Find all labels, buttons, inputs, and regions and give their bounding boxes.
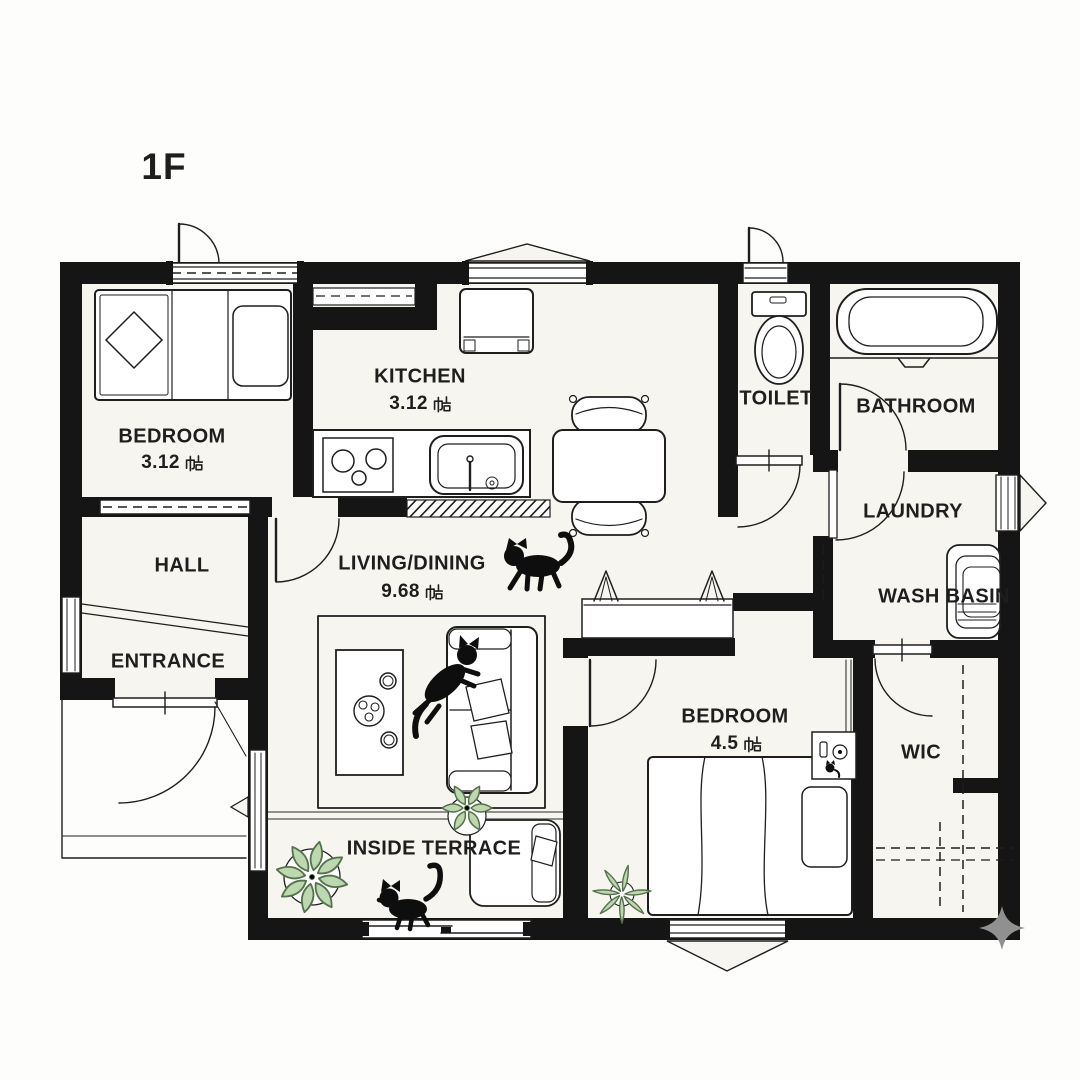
cup <box>381 732 397 748</box>
room-label-laundry: LAUNDRY <box>863 501 963 524</box>
door-exterior-bedroom1 <box>179 224 219 262</box>
chair <box>572 397 646 433</box>
window-entrance-left <box>62 597 80 673</box>
room-label-hall: HALL <box>155 555 210 578</box>
door-entrance <box>113 692 217 803</box>
size-value: 3.12 <box>141 452 180 474</box>
floor-plan-page: 1F BEDROOM 3.12 KITCHEN 3.12 TOILET BATH… <box>0 0 1080 1080</box>
dining-table <box>553 430 665 502</box>
floor-label: 1F <box>141 146 186 188</box>
window-kitchen-top <box>462 244 593 285</box>
kitchen-counter <box>313 430 530 497</box>
pillow <box>531 836 557 866</box>
toilet-fixture <box>752 292 806 384</box>
size-value: 9.68 <box>381 581 420 603</box>
terrace-floor-chair <box>470 820 560 906</box>
cup <box>380 673 396 689</box>
window-terrace-bottom <box>360 920 532 938</box>
room-size-living-dining: 9.68 <box>381 581 443 603</box>
room-size-kitchen: 3.12 <box>389 393 451 415</box>
room-size-bedroom1: 3.12 <box>141 452 203 474</box>
room-label-bathroom: BATHROOM <box>856 396 975 419</box>
window-bedroom2-bottom <box>664 920 791 971</box>
bedroom2-bed <box>648 757 852 915</box>
jou-unit-icon <box>184 454 203 473</box>
jou-unit-icon <box>432 395 451 414</box>
room-label-kitchen: KITCHEN <box>374 366 466 389</box>
room-label-bedroom1: BEDROOM <box>118 426 225 449</box>
sliding-pocket-kitchen <box>313 288 415 305</box>
chair <box>572 499 646 535</box>
door-exterior-toilet <box>749 228 783 262</box>
entrance-porch <box>62 700 246 858</box>
size-value: 4.5 <box>711 733 739 755</box>
cat-face-icon <box>826 764 835 773</box>
window-bedroom1-top <box>166 261 304 285</box>
room-label-wic: WIC <box>901 742 941 765</box>
room-label-living-dining: LIVING/DINING <box>338 553 485 576</box>
room-label-entrance: ENTRANCE <box>111 651 225 674</box>
jou-unit-icon <box>742 735 761 754</box>
window-toilet-top <box>743 263 788 283</box>
jou-unit-icon <box>424 583 443 602</box>
window-laundry-right <box>996 475 1046 531</box>
room-label-wash-basin: WASH BASIN <box>878 586 1010 609</box>
pillow <box>802 787 847 867</box>
room-size-bedroom2: 4.5 <box>711 733 762 755</box>
pillow <box>233 306 288 386</box>
room-label-bedroom2: BEDROOM <box>681 706 788 729</box>
sliding-door-bedroom1 <box>100 500 250 514</box>
refrigerator <box>460 289 533 353</box>
counter-hatch <box>398 498 558 519</box>
sofa-pillow <box>471 721 512 759</box>
room-label-inside-terrace: INSIDE TERRACE <box>347 838 522 861</box>
room-label-toilet: TOILET <box>739 388 812 411</box>
cat-litter-cabinet <box>812 732 856 779</box>
size-value: 3.12 <box>389 393 428 415</box>
bedroom1-bed <box>95 290 291 400</box>
